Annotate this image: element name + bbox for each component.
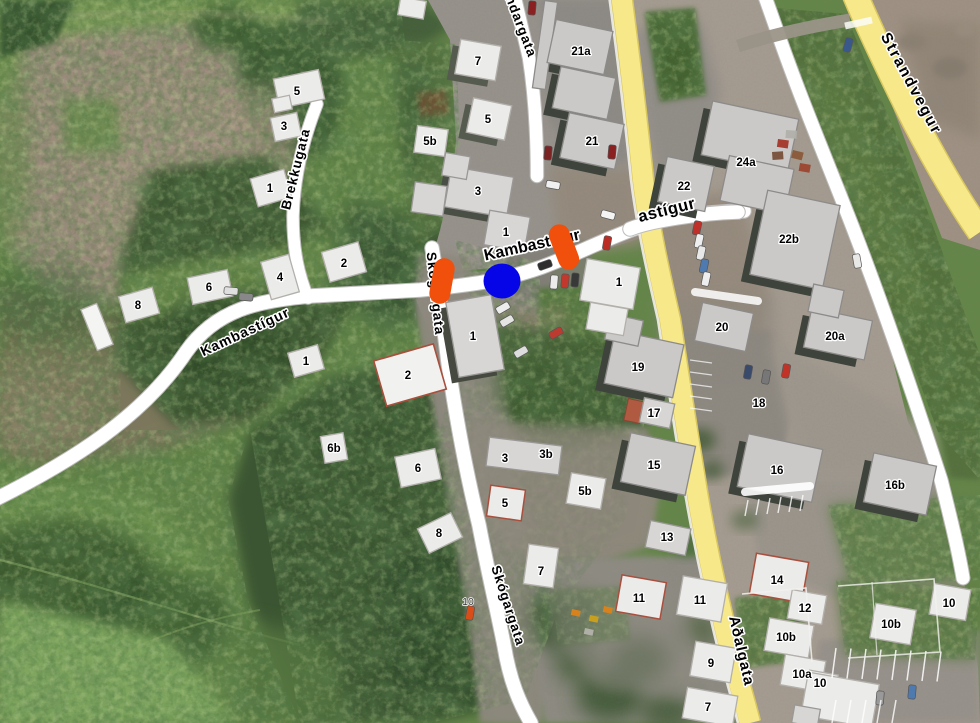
svg-text:8: 8 <box>436 528 443 540</box>
svg-text:3: 3 <box>475 186 481 198</box>
svg-text:17: 17 <box>648 408 661 420</box>
svg-text:3: 3 <box>502 453 508 465</box>
svg-text:4: 4 <box>277 272 284 284</box>
svg-text:6b: 6b <box>327 443 340 455</box>
svg-text:20: 20 <box>716 322 729 334</box>
svg-text:11: 11 <box>694 595 707 607</box>
svg-text:16: 16 <box>771 465 784 477</box>
svg-text:6: 6 <box>206 282 212 294</box>
svg-text:16b: 16b <box>885 480 905 492</box>
svg-text:5: 5 <box>502 498 509 510</box>
svg-text:15: 15 <box>648 460 661 472</box>
svg-text:21: 21 <box>586 136 599 148</box>
svg-text:7: 7 <box>705 702 711 714</box>
svg-text:1: 1 <box>616 277 623 289</box>
svg-text:3b: 3b <box>539 449 552 461</box>
svg-text:5b: 5b <box>578 486 591 498</box>
svg-text:13: 13 <box>661 532 674 544</box>
svg-text:1: 1 <box>267 183 274 195</box>
svg-text:22: 22 <box>678 181 691 193</box>
svg-text:10: 10 <box>814 678 827 690</box>
svg-text:5b: 5b <box>423 136 436 148</box>
svg-text:10: 10 <box>943 598 956 610</box>
svg-text:10b: 10b <box>881 619 901 631</box>
svg-text:7: 7 <box>475 56 481 68</box>
svg-text:3: 3 <box>281 121 287 133</box>
svg-text:5: 5 <box>294 86 301 98</box>
svg-text:24a: 24a <box>736 157 756 169</box>
svg-text:8: 8 <box>135 300 142 312</box>
svg-text:10: 10 <box>462 596 474 608</box>
svg-text:20a: 20a <box>825 331 845 343</box>
svg-text:1: 1 <box>303 356 310 368</box>
svg-text:2: 2 <box>405 370 411 382</box>
svg-text:1: 1 <box>503 227 510 239</box>
svg-text:10a: 10a <box>792 669 812 681</box>
svg-text:21a: 21a <box>571 46 591 58</box>
svg-text:14: 14 <box>771 575 784 587</box>
svg-text:10b: 10b <box>776 632 796 644</box>
svg-text:18: 18 <box>753 398 766 410</box>
svg-text:12: 12 <box>799 603 812 615</box>
svg-text:1: 1 <box>470 331 477 343</box>
svg-text:2: 2 <box>341 258 347 270</box>
svg-text:19: 19 <box>632 362 645 374</box>
svg-text:9: 9 <box>708 658 714 670</box>
svg-text:7: 7 <box>538 566 544 578</box>
svg-text:22b: 22b <box>779 234 799 246</box>
svg-text:11: 11 <box>633 593 646 605</box>
svg-text:6: 6 <box>415 463 421 475</box>
svg-text:5: 5 <box>485 114 492 126</box>
